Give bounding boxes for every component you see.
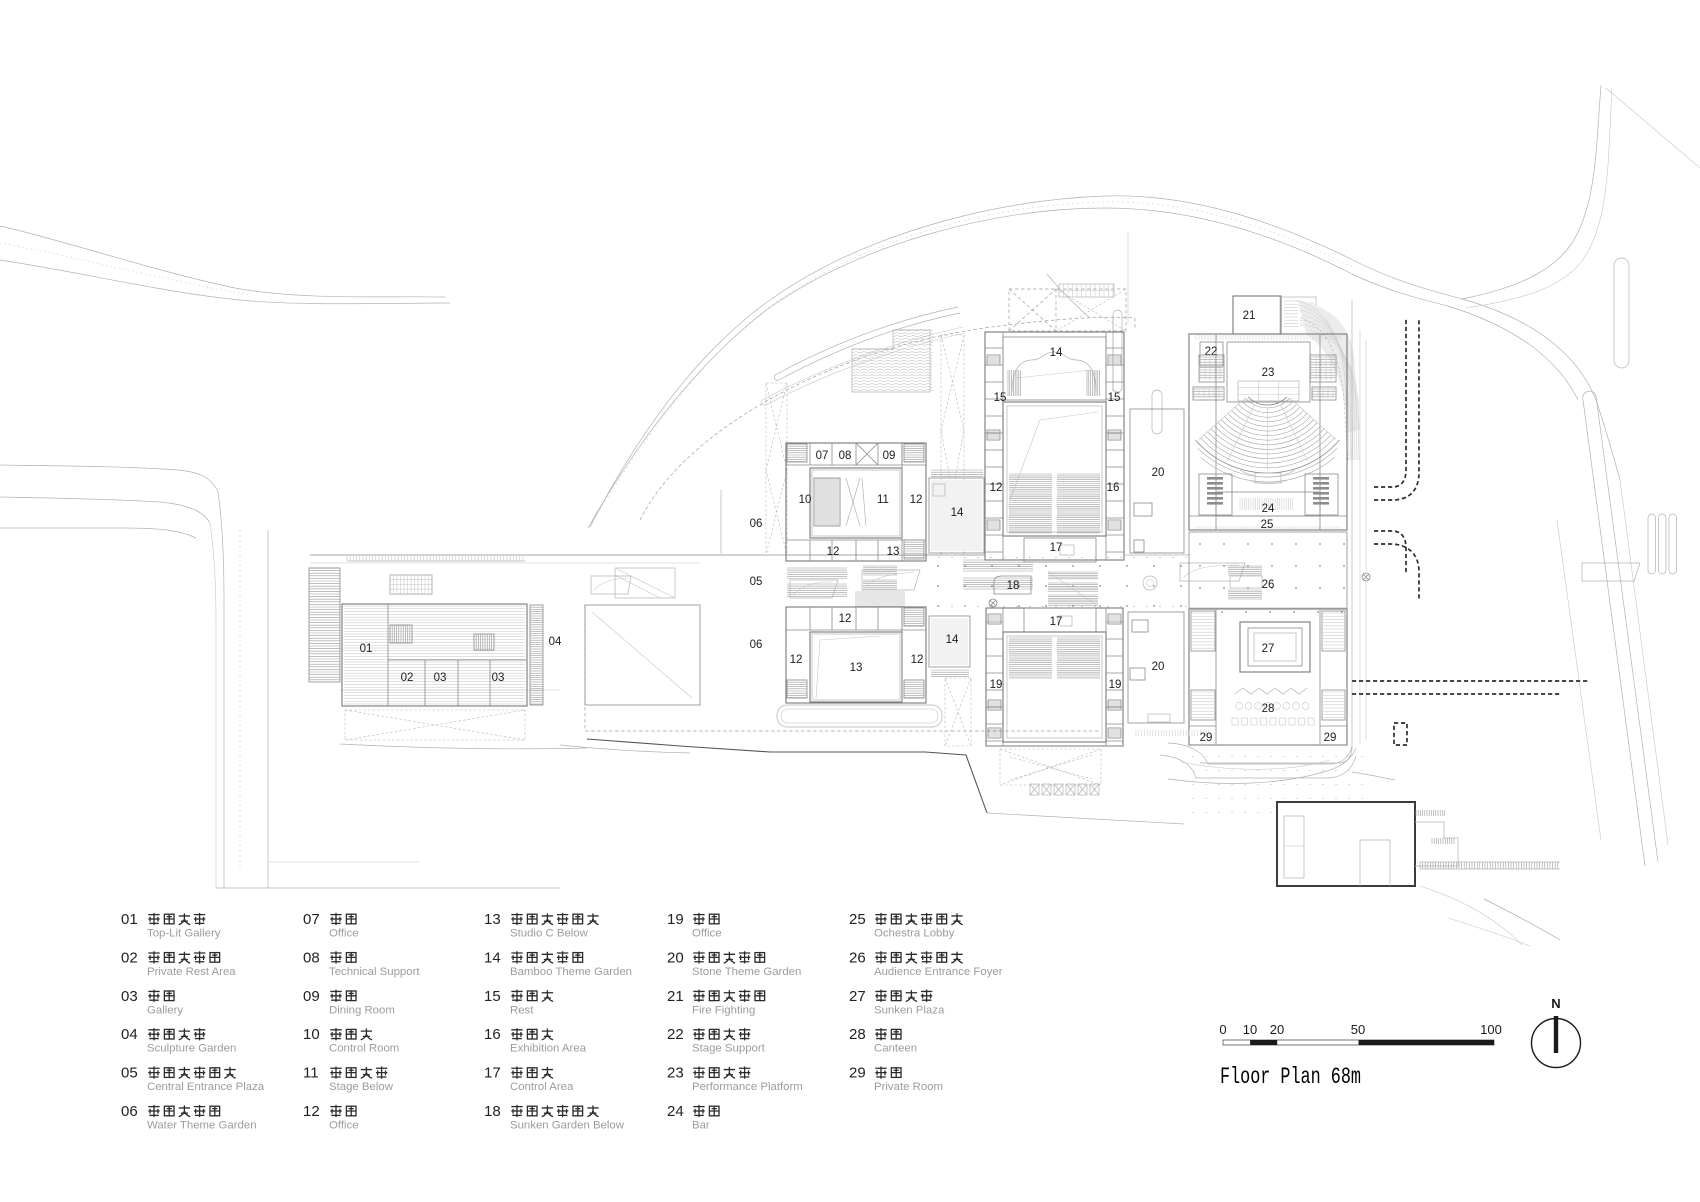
svg-text:14: 14 xyxy=(951,507,964,519)
svg-text:21: 21 xyxy=(667,988,684,1005)
svg-text:12: 12 xyxy=(910,494,923,506)
svg-text:01: 01 xyxy=(121,911,138,928)
svg-text:28: 28 xyxy=(1262,703,1275,715)
svg-text:17: 17 xyxy=(484,1065,501,1082)
svg-text:01: 01 xyxy=(360,643,373,655)
svg-text:04: 04 xyxy=(549,636,562,648)
svg-text:03: 03 xyxy=(434,672,447,684)
svg-text:20: 20 xyxy=(667,949,684,966)
svg-text:18: 18 xyxy=(1007,580,1020,592)
svg-text:04: 04 xyxy=(121,1026,138,1043)
svg-text:12: 12 xyxy=(990,482,1003,494)
svg-text:Water Theme Garden: Water Theme Garden xyxy=(147,1120,257,1132)
svg-text:Central Entrance Plaza: Central Entrance Plaza xyxy=(147,1081,265,1093)
svg-text:13: 13 xyxy=(887,546,900,558)
svg-text:09: 09 xyxy=(883,450,896,462)
svg-text:Control Room: Control Room xyxy=(329,1043,399,1055)
svg-text:15: 15 xyxy=(484,988,501,1005)
svg-text:10: 10 xyxy=(303,1026,320,1043)
svg-text:18: 18 xyxy=(484,1103,501,1120)
svg-text:13: 13 xyxy=(484,911,501,928)
svg-text:Office: Office xyxy=(329,928,359,940)
svg-text:Stage Support: Stage Support xyxy=(692,1043,766,1055)
svg-text:25: 25 xyxy=(1261,519,1274,531)
svg-text:14: 14 xyxy=(1050,347,1063,359)
svg-text:15: 15 xyxy=(1108,392,1121,404)
svg-text:Bar: Bar xyxy=(692,1120,710,1132)
svg-text:23: 23 xyxy=(1262,367,1275,379)
svg-text:Floor Plan 68m: Floor Plan 68m xyxy=(1220,1065,1361,1091)
svg-text:Audience Entrance Foyer: Audience Entrance Foyer xyxy=(874,966,1003,978)
svg-text:27: 27 xyxy=(1262,643,1275,655)
svg-text:Exhibition Area: Exhibition Area xyxy=(510,1043,587,1055)
svg-text:17: 17 xyxy=(1050,616,1063,628)
svg-text:Technical Support: Technical Support xyxy=(329,966,420,978)
svg-text:02: 02 xyxy=(121,949,138,966)
svg-text:28: 28 xyxy=(849,1026,866,1043)
svg-text:13: 13 xyxy=(850,662,863,674)
svg-text:02: 02 xyxy=(401,672,414,684)
svg-text:Control Area: Control Area xyxy=(510,1081,574,1093)
svg-text:05: 05 xyxy=(750,576,763,588)
svg-text:21: 21 xyxy=(1243,310,1256,322)
svg-text:08: 08 xyxy=(303,949,320,966)
svg-text:14: 14 xyxy=(484,949,501,966)
svg-text:Studio C Below: Studio C Below xyxy=(510,928,589,940)
svg-text:19: 19 xyxy=(667,911,684,928)
svg-text:27: 27 xyxy=(849,988,866,1005)
svg-text:10: 10 xyxy=(799,494,812,506)
svg-text:26: 26 xyxy=(849,949,866,966)
svg-text:Gallery: Gallery xyxy=(147,1004,183,1016)
svg-text:12: 12 xyxy=(303,1103,320,1120)
svg-text:Private Room: Private Room xyxy=(874,1081,943,1093)
svg-text:Office: Office xyxy=(692,928,722,940)
svg-text:07: 07 xyxy=(816,450,829,462)
svg-text:16: 16 xyxy=(484,1026,501,1043)
svg-text:06: 06 xyxy=(750,639,763,651)
svg-text:Stage Below: Stage Below xyxy=(329,1081,394,1093)
svg-text:Stone Theme Garden: Stone Theme Garden xyxy=(692,966,801,978)
svg-text:07: 07 xyxy=(303,911,320,928)
svg-text:29: 29 xyxy=(1324,732,1337,744)
svg-text:22: 22 xyxy=(667,1026,684,1043)
svg-text:Canteen: Canteen xyxy=(874,1043,917,1055)
svg-text:Dining Room: Dining Room xyxy=(329,1004,395,1016)
svg-text:20: 20 xyxy=(1270,1022,1284,1037)
svg-text:25: 25 xyxy=(849,911,866,928)
svg-text:12: 12 xyxy=(839,613,852,625)
svg-text:Sunken Garden Below: Sunken Garden Below xyxy=(510,1120,625,1132)
svg-text:20: 20 xyxy=(1152,661,1165,673)
svg-text:06: 06 xyxy=(750,518,763,530)
svg-text:14: 14 xyxy=(946,634,959,646)
svg-text:08: 08 xyxy=(839,450,852,462)
svg-text:Office: Office xyxy=(329,1120,359,1132)
svg-text:06: 06 xyxy=(121,1103,138,1120)
svg-text:12: 12 xyxy=(827,546,840,558)
svg-text:19: 19 xyxy=(1109,679,1122,691)
svg-text:03: 03 xyxy=(121,988,138,1005)
svg-text:Sculpture Garden: Sculpture Garden xyxy=(147,1043,236,1055)
svg-text:Private Rest Area: Private Rest Area xyxy=(147,966,236,978)
svg-text:Sunken Plaza: Sunken Plaza xyxy=(874,1004,945,1016)
svg-text:Ochestra Lobby: Ochestra Lobby xyxy=(874,928,955,940)
svg-text:29: 29 xyxy=(849,1065,866,1082)
svg-text:16: 16 xyxy=(1107,482,1120,494)
svg-text:03: 03 xyxy=(492,672,505,684)
svg-text:20: 20 xyxy=(1152,467,1165,479)
svg-text:10: 10 xyxy=(1243,1022,1257,1037)
svg-text:N: N xyxy=(1551,996,1560,1011)
svg-text:05: 05 xyxy=(121,1065,138,1082)
svg-text:11: 11 xyxy=(877,494,889,506)
svg-text:23: 23 xyxy=(667,1065,684,1082)
svg-text:12: 12 xyxy=(790,654,803,666)
svg-text:26: 26 xyxy=(1262,579,1275,591)
svg-text:Fire Fighting: Fire Fighting xyxy=(692,1004,755,1016)
svg-text:Rest: Rest xyxy=(510,1004,534,1016)
svg-text:24: 24 xyxy=(667,1103,684,1120)
svg-text:17: 17 xyxy=(1050,542,1063,554)
svg-text:19: 19 xyxy=(990,679,1003,691)
svg-text:24: 24 xyxy=(1262,503,1275,515)
svg-text:0: 0 xyxy=(1219,1022,1226,1037)
svg-text:100: 100 xyxy=(1480,1022,1502,1037)
svg-text:22: 22 xyxy=(1205,346,1218,358)
svg-text:Bamboo Theme Garden: Bamboo Theme Garden xyxy=(510,966,632,978)
svg-text:Top-Lit Gallery: Top-Lit Gallery xyxy=(147,928,221,940)
svg-text:12: 12 xyxy=(911,654,924,666)
svg-text:11: 11 xyxy=(303,1065,319,1082)
svg-text:09: 09 xyxy=(303,988,320,1005)
svg-text:50: 50 xyxy=(1351,1022,1365,1037)
svg-text:Performance Platform: Performance Platform xyxy=(692,1081,803,1093)
